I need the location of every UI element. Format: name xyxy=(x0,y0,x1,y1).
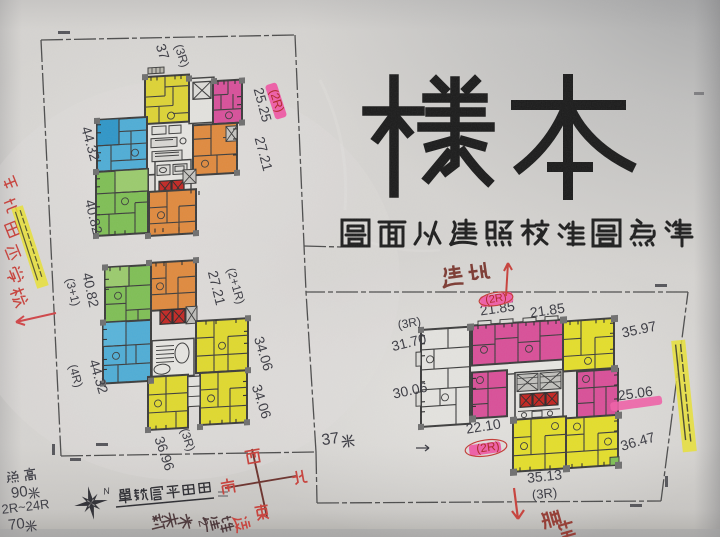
svg-text:(3R): (3R) xyxy=(531,485,558,503)
svg-text:37: 37 xyxy=(320,430,340,449)
svg-text:70: 70 xyxy=(7,515,26,534)
